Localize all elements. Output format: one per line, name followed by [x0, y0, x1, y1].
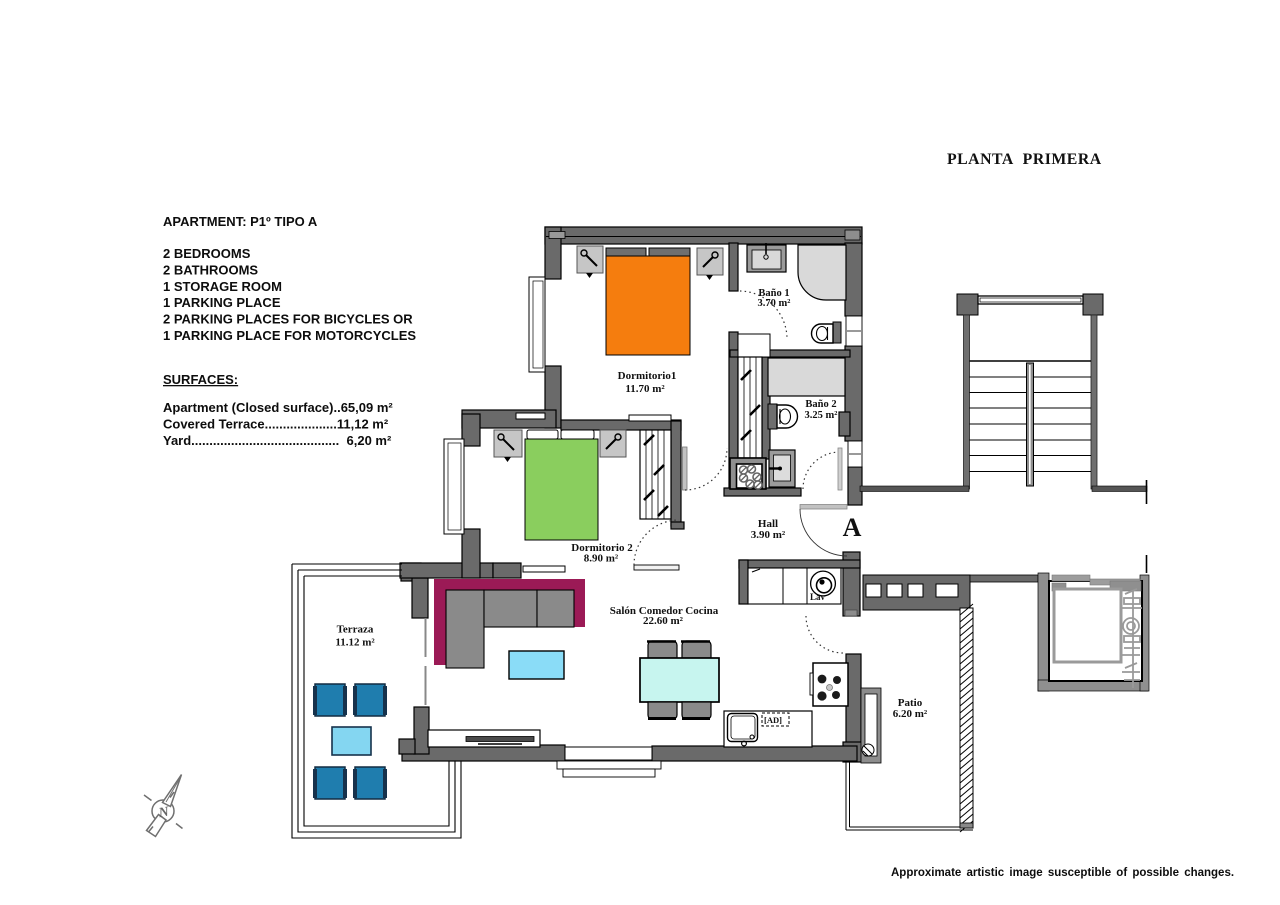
svg-text:11.70 m²: 11.70 m² — [625, 383, 665, 395]
svg-text:APARTMENT: P1º TIPO A: APARTMENT: P1º TIPO A — [163, 214, 318, 229]
svg-text:Approximate artistic image sus: Approximate artistic image susceptible o… — [891, 867, 1234, 879]
svg-text:1 STORAGE ROOM: 1 STORAGE ROOM — [163, 279, 282, 294]
svg-text:Baño 2: Baño 2 — [805, 399, 836, 410]
svg-text:[AD]: [AD] — [764, 715, 782, 725]
svg-text:A: A — [843, 513, 862, 542]
svg-text:8.90 m²: 8.90 m² — [584, 553, 619, 565]
svg-text:2 PARKING PLACES FOR BICYCLES: 2 PARKING PLACES FOR BICYCLES OR — [163, 312, 413, 327]
svg-text:PLANTA PRIMERA: PLANTA PRIMERA — [947, 151, 1102, 168]
svg-text:2 BEDROOMS: 2 BEDROOMS — [163, 246, 251, 261]
svg-text:6.20 m²: 6.20 m² — [893, 708, 928, 720]
svg-text:3.90 m²: 3.90 m² — [751, 529, 786, 541]
svg-text:Yard..........................: Yard....................................… — [163, 433, 392, 448]
svg-text:2 BATHROOMS: 2 BATHROOMS — [163, 262, 258, 277]
svg-text:3.70 m²: 3.70 m² — [758, 298, 791, 309]
svg-text:Terraza: Terraza — [337, 624, 374, 636]
svg-text:Apartment (Closed surface)..65: Apartment (Closed surface)..65,09 m² — [163, 400, 393, 415]
svg-text:11.12 m²: 11.12 m² — [335, 637, 375, 649]
svg-text:SURFACES:: SURFACES: — [163, 372, 238, 387]
svg-text:1 PARKING PLACE: 1 PARKING PLACE — [163, 295, 281, 310]
svg-text:Lav: Lav — [810, 592, 826, 602]
svg-text:Dormitorio1: Dormitorio1 — [618, 370, 677, 382]
svg-text:22.60 m²: 22.60 m² — [643, 615, 684, 627]
svg-text:Covered Terrace...............: Covered Terrace....................11,12… — [163, 416, 389, 431]
svg-text:1 PARKING PLACE FOR MOTORCYCLE: 1 PARKING PLACE FOR MOTORCYCLES — [163, 328, 416, 343]
svg-text:3.25 m²: 3.25 m² — [805, 410, 838, 421]
